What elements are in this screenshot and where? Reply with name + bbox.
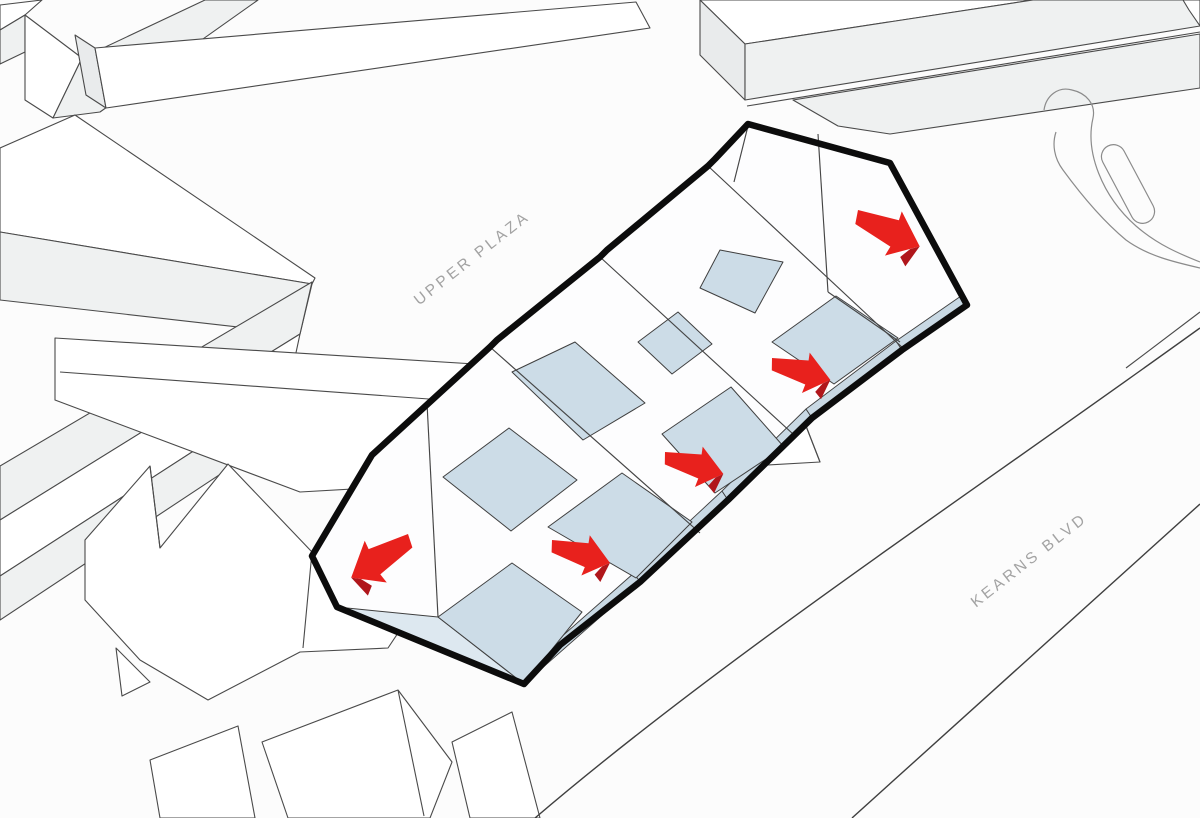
building-block (75, 2, 650, 108)
road-label: KEARNS BLVD (968, 510, 1091, 611)
context-buildings-top (700, 0, 1200, 134)
building-block (262, 690, 452, 818)
driveway-island (1097, 140, 1159, 227)
building-block (0, 115, 315, 334)
plaza-label: UPPER PLAZA (411, 208, 533, 309)
road-edge-median (1126, 312, 1200, 368)
building-block (452, 712, 540, 818)
building-block (150, 726, 255, 818)
site-diagram: UPPER PLAZA KEARNS BLVD (0, 0, 1200, 818)
driveway-loop (1044, 89, 1200, 268)
